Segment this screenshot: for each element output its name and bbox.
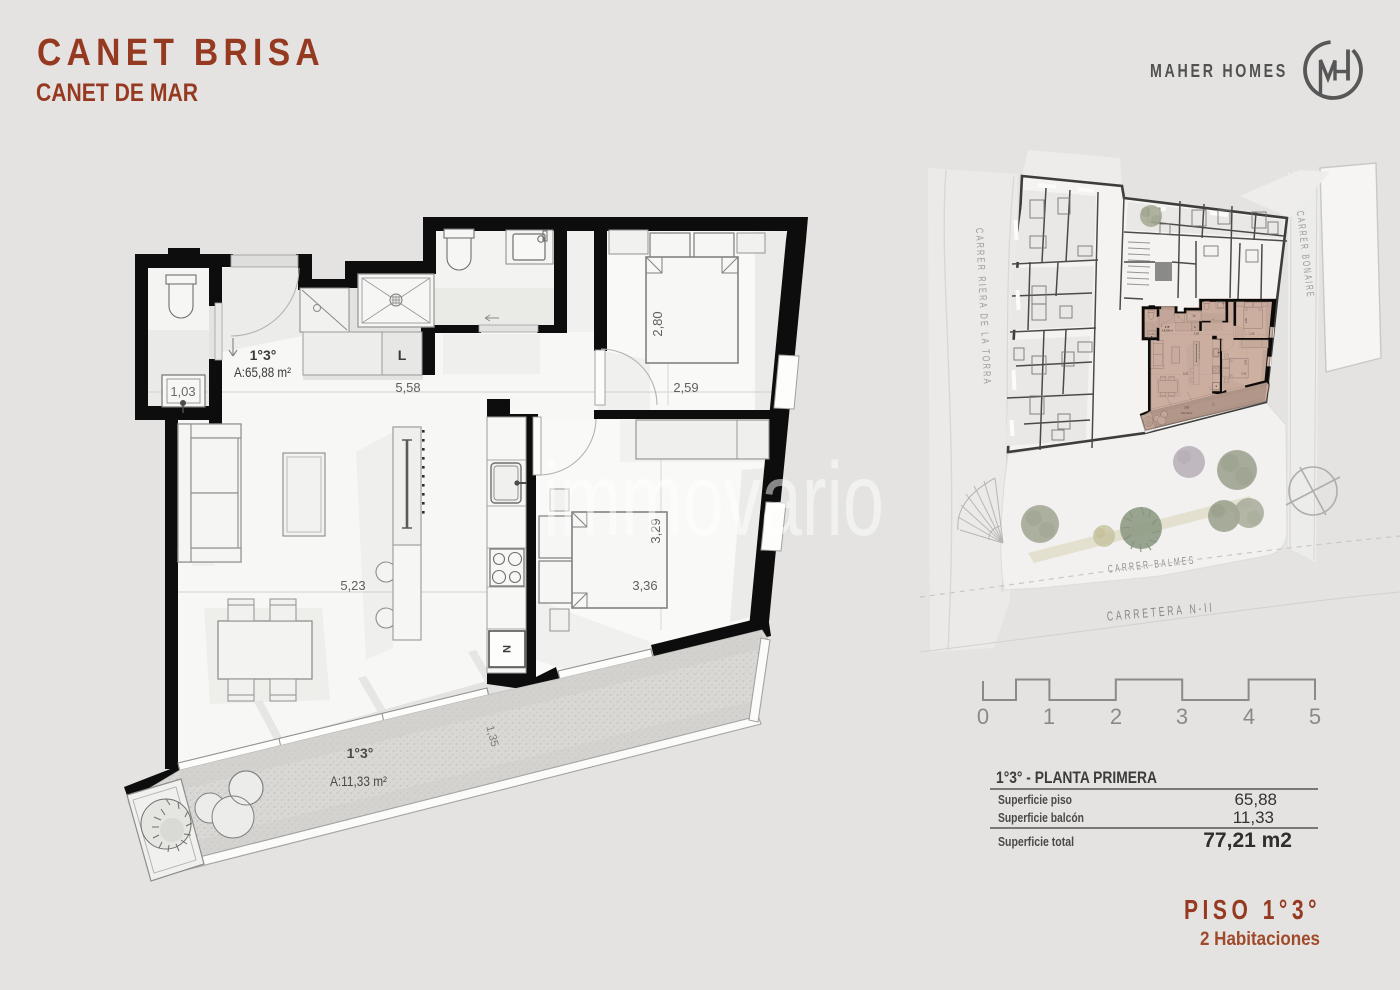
svg-text:N: N — [500, 645, 512, 653]
svg-text:2,80: 2,80 — [650, 311, 665, 336]
svg-text:immovario: immovario — [543, 442, 884, 558]
svg-text:77,21 m2: 77,21 m2 — [1203, 829, 1292, 852]
svg-text:2,59: 2,59 — [673, 380, 698, 395]
svg-text:3: 3 — [1176, 704, 1188, 729]
svg-text:Superficie balcón: Superficie balcón — [998, 810, 1084, 825]
svg-text:CANET BRISA: CANET BRISA — [37, 32, 325, 74]
svg-text:65,88: 65,88 — [1234, 790, 1277, 809]
svg-text:5: 5 — [1309, 704, 1321, 729]
svg-text:4: 4 — [1243, 704, 1255, 729]
svg-text:2: 2 — [1110, 704, 1122, 729]
svg-text:1°3° - PLANTA PRIMERA: 1°3° - PLANTA PRIMERA — [996, 768, 1157, 787]
svg-text:5,23: 5,23 — [340, 578, 365, 593]
svg-text:CANET DE MAR: CANET DE MAR — [36, 79, 198, 107]
svg-text:1°3°: 1°3° — [347, 745, 374, 761]
svg-text:MAHER HOMES: MAHER HOMES — [1150, 61, 1288, 81]
svg-text:Superficie total: Superficie total — [998, 834, 1074, 849]
svg-text:1,03: 1,03 — [170, 384, 195, 399]
svg-text:0: 0 — [977, 704, 989, 729]
svg-text:A:11,33 m²: A:11,33 m² — [330, 774, 387, 789]
svg-text:L: L — [398, 347, 407, 363]
svg-text:3,36: 3,36 — [632, 578, 657, 593]
svg-text:PISO 1°3°: PISO 1°3° — [1184, 894, 1321, 925]
svg-text:A:65,88 m²: A:65,88 m² — [234, 365, 291, 380]
svg-text:1: 1 — [1043, 704, 1055, 729]
svg-text:Superficie piso: Superficie piso — [998, 792, 1072, 807]
svg-text:11,33: 11,33 — [1233, 808, 1274, 827]
svg-text:5,58: 5,58 — [395, 380, 420, 395]
svg-text:2 Habitaciones: 2 Habitaciones — [1200, 928, 1320, 950]
svg-text:1°3°: 1°3° — [250, 347, 277, 363]
